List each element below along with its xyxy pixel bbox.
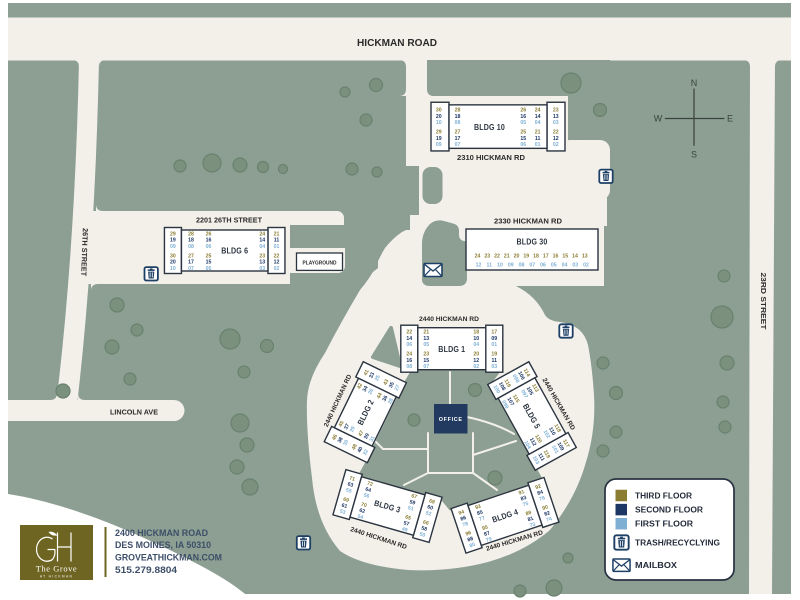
svg-text:24: 24 [475, 254, 481, 260]
svg-text:BLDG 1: BLDG 1 [438, 345, 465, 354]
svg-text:271707: 271707 [455, 130, 461, 148]
svg-text:S: S [691, 150, 697, 160]
svg-text:23: 23 [484, 254, 490, 260]
svg-text:AT HICKMAN: AT HICKMAN [40, 575, 73, 579]
svg-text:291909: 291909 [170, 232, 176, 250]
svg-text:26TH STREET: 26TH STREET [79, 228, 90, 277]
svg-text:PLAYGROUND: PLAYGROUND [303, 261, 337, 267]
svg-text:19: 19 [523, 254, 529, 260]
svg-text:2400 HICKMAN ROAD: 2400 HICKMAN ROAD [115, 528, 208, 538]
svg-text:241404: 241404 [259, 232, 265, 250]
svg-text:08: 08 [519, 263, 525, 269]
svg-text:20: 20 [514, 254, 520, 260]
svg-text:302010: 302010 [436, 108, 442, 126]
svg-text:2440 HICKMAN RD: 2440 HICKMAN RD [419, 316, 479, 323]
svg-text:221202: 221202 [553, 130, 559, 148]
svg-text:281808: 281808 [455, 108, 461, 126]
svg-text:16: 16 [553, 254, 559, 260]
svg-text:09: 09 [508, 263, 514, 269]
svg-text:251506: 251506 [520, 130, 526, 148]
svg-text:18: 18 [533, 254, 539, 260]
svg-text:OFFICE: OFFICE [439, 417, 463, 423]
svg-text:22: 22 [494, 254, 500, 260]
svg-text:17: 17 [543, 254, 549, 260]
svg-text:LINCOLN AVE: LINCOLN AVE [110, 408, 158, 417]
svg-text:231303: 231303 [553, 108, 559, 126]
svg-text:GROVEATHICKMAN.COM: GROVEATHICKMAN.COM [115, 553, 222, 563]
svg-text:261606: 261606 [206, 232, 212, 250]
svg-text:515.279.8804: 515.279.8804 [115, 565, 178, 575]
svg-text:11: 11 [487, 263, 493, 269]
svg-text:03: 03 [572, 263, 578, 269]
svg-text:2310 HICKMAN RD: 2310 HICKMAN RD [457, 153, 526, 162]
svg-text:SECOND FLOOR: SECOND FLOOR [635, 505, 703, 514]
svg-text:HICKMAN ROAD: HICKMAN ROAD [357, 38, 437, 49]
svg-text:271707: 271707 [188, 254, 194, 272]
svg-text:302010: 302010 [170, 254, 176, 272]
svg-text:06: 06 [540, 263, 546, 269]
svg-text:07: 07 [529, 263, 535, 269]
svg-text:201202: 201202 [473, 352, 479, 370]
svg-text:MAILBOX: MAILBOX [635, 561, 678, 570]
svg-text:15: 15 [562, 254, 568, 260]
svg-text:191103: 191103 [491, 352, 497, 370]
svg-text:E: E [727, 114, 733, 124]
svg-text:13: 13 [582, 254, 588, 260]
svg-text:251505: 251505 [206, 254, 212, 272]
svg-text:TRASH/RECYCLYING: TRASH/RECYCLYING [635, 538, 720, 547]
svg-text:241404: 241404 [535, 108, 541, 126]
svg-text:BLDG 30: BLDG 30 [517, 238, 548, 247]
svg-text:14: 14 [572, 254, 578, 260]
svg-text:DES MOINES, IA 50310: DES MOINES, IA 50310 [115, 540, 211, 550]
svg-text:291909: 291909 [436, 130, 442, 148]
svg-text:02: 02 [583, 263, 589, 269]
svg-text:231303: 231303 [259, 254, 265, 272]
svg-text:211305: 211305 [423, 330, 429, 348]
svg-text:05: 05 [551, 263, 557, 269]
svg-text:281808: 281808 [188, 232, 194, 250]
svg-text:W: W [654, 114, 663, 124]
svg-text:231507: 231507 [423, 352, 429, 370]
svg-text:10: 10 [497, 263, 503, 269]
svg-text:23RD STREET: 23RD STREET [759, 273, 768, 331]
svg-text:170901: 170901 [491, 330, 497, 348]
svg-text:21: 21 [504, 254, 510, 260]
svg-text:04: 04 [562, 263, 568, 269]
svg-text:FIRST FLOOR: FIRST FLOOR [635, 520, 693, 529]
svg-text:BLDG 6: BLDG 6 [221, 247, 248, 256]
svg-text:261605: 261605 [520, 108, 526, 126]
svg-text:211101: 211101 [274, 232, 280, 250]
svg-text:THIRD FLOOR: THIRD FLOOR [635, 491, 692, 500]
svg-text:181004: 181004 [473, 330, 479, 348]
svg-text:N: N [691, 78, 698, 88]
svg-text:221406: 221406 [406, 330, 412, 348]
svg-text:BLDG 10: BLDG 10 [474, 123, 505, 132]
svg-text:221202: 221202 [274, 254, 280, 272]
svg-text:2330 HICKMAN RD: 2330 HICKMAN RD [494, 217, 563, 226]
svg-text:12: 12 [476, 263, 482, 269]
svg-text:The Grove: The Grove [36, 565, 77, 574]
svg-text:241608: 241608 [406, 352, 412, 370]
svg-text:211101: 211101 [535, 130, 541, 148]
svg-text:2201 26TH STREET: 2201 26TH STREET [196, 216, 262, 225]
